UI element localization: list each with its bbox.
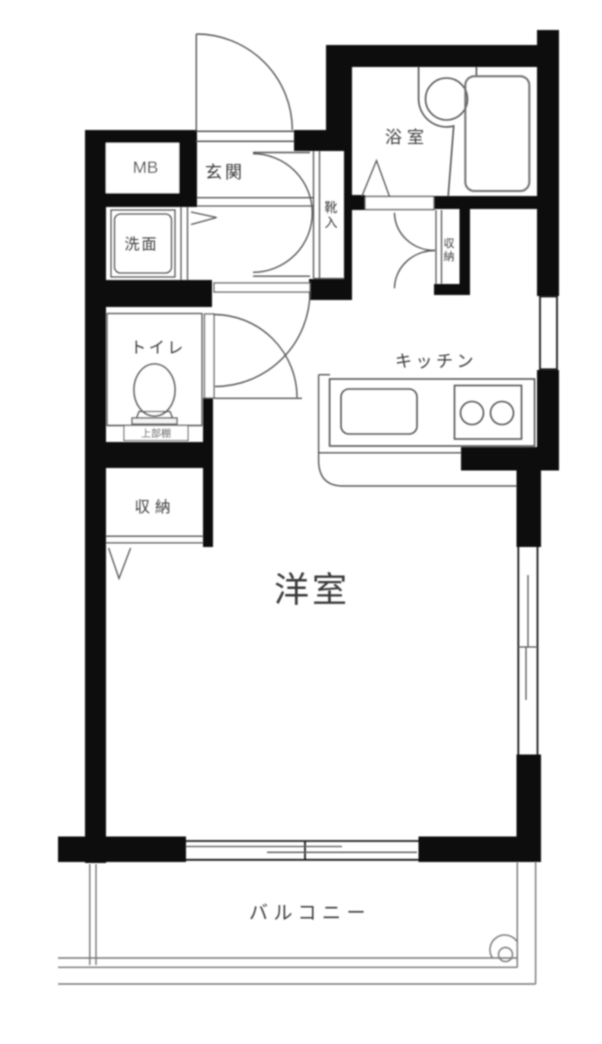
svg-text:洋室: 洋室 xyxy=(274,571,350,610)
svg-text:納: 納 xyxy=(444,250,455,263)
svg-text:入: 入 xyxy=(324,215,337,230)
svg-text:MB: MB xyxy=(133,158,159,177)
svg-text:収: 収 xyxy=(444,237,455,250)
svg-text:トイレ: トイレ xyxy=(130,340,186,357)
svg-text:バルコニー: バルコニー xyxy=(249,903,371,924)
svg-text:キッチン: キッチン xyxy=(395,352,477,371)
svg-text:玄関: 玄関 xyxy=(205,163,245,182)
svg-text:洗面: 洗面 xyxy=(124,236,158,253)
svg-text:上部棚: 上部棚 xyxy=(141,427,171,440)
svg-text:靴: 靴 xyxy=(324,200,337,215)
svg-text:浴室: 浴室 xyxy=(385,128,429,147)
svg-text:収納: 収納 xyxy=(134,498,175,516)
